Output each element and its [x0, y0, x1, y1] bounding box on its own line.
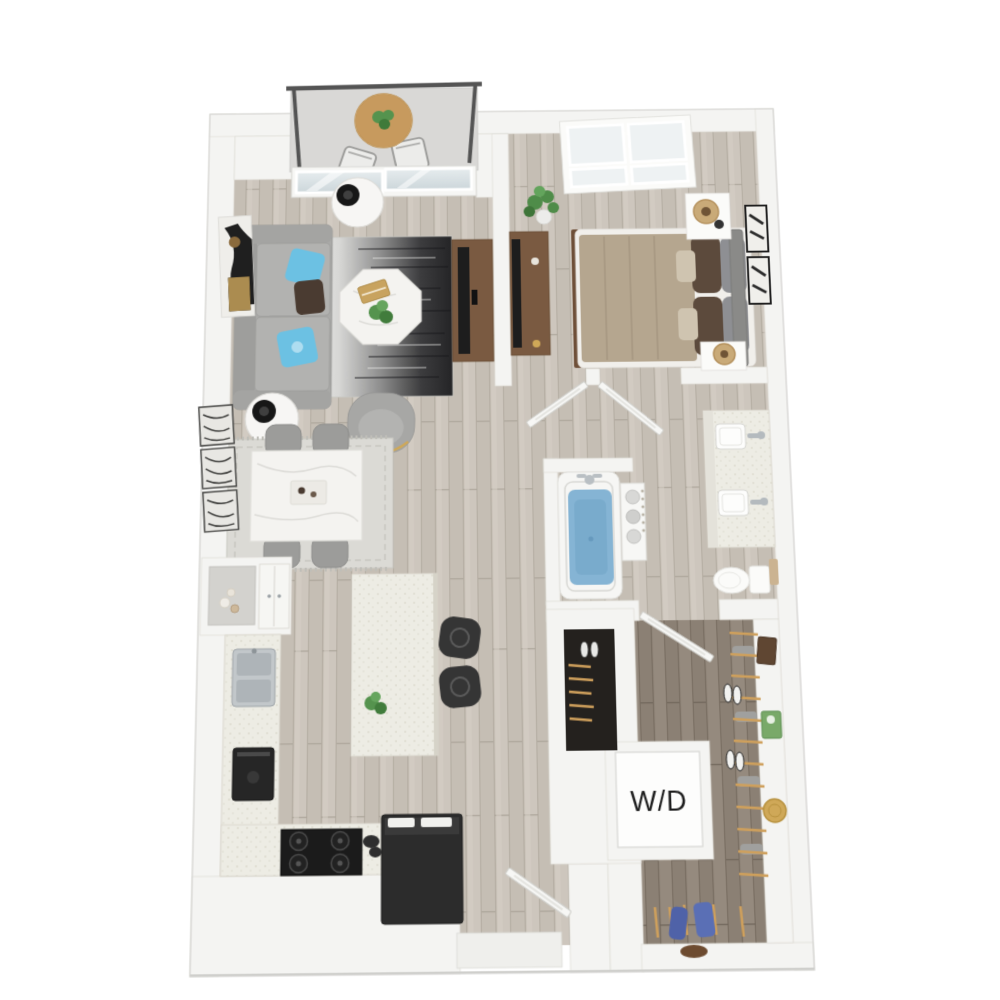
dining-table	[250, 450, 362, 541]
floor-plan: W/D	[129, 77, 845, 988]
floor-plan-page: W/D	[0, 0, 1000, 1000]
bedroom-tv	[512, 239, 522, 348]
nightstand-bottom	[700, 342, 746, 371]
entry-stoop	[457, 932, 562, 968]
kitchen-island	[351, 573, 438, 756]
coffee-table	[339, 269, 421, 345]
blue-pillow-bottom	[276, 326, 319, 368]
tv-console	[452, 239, 494, 361]
bedroom-window	[559, 115, 696, 194]
refrigerator	[381, 814, 463, 924]
nightstand-top	[685, 193, 731, 239]
brown-pillow	[293, 279, 325, 316]
tv	[458, 247, 471, 354]
gold-basket	[763, 799, 787, 823]
storage-box-green	[761, 711, 782, 738]
toilet	[713, 566, 770, 594]
floor-plan-drawing: W/D	[129, 77, 845, 988]
balcony	[285, 84, 483, 198]
bistro-table	[355, 94, 412, 148]
living-wall-art	[218, 215, 254, 317]
bar-stool-top	[437, 615, 482, 661]
towel-shelf	[620, 483, 646, 560]
washer-dryer-label: W/D	[630, 784, 688, 817]
sliding-glass-door	[291, 166, 476, 198]
bathtub	[558, 472, 623, 600]
kitchen-sink	[232, 648, 276, 706]
bar-stool-bottom	[438, 664, 483, 710]
bedroom-dresser	[510, 232, 551, 356]
side-table-top	[331, 177, 383, 227]
laundry-closet: W/D	[615, 752, 702, 848]
wall-oven	[232, 748, 274, 801]
double-vanity	[703, 410, 775, 548]
kitchen-hutch	[200, 557, 292, 635]
hand-towel	[769, 559, 779, 585]
coat-closet	[564, 629, 618, 751]
dining-wall-art	[199, 405, 239, 532]
storage-box-brown	[757, 637, 777, 665]
